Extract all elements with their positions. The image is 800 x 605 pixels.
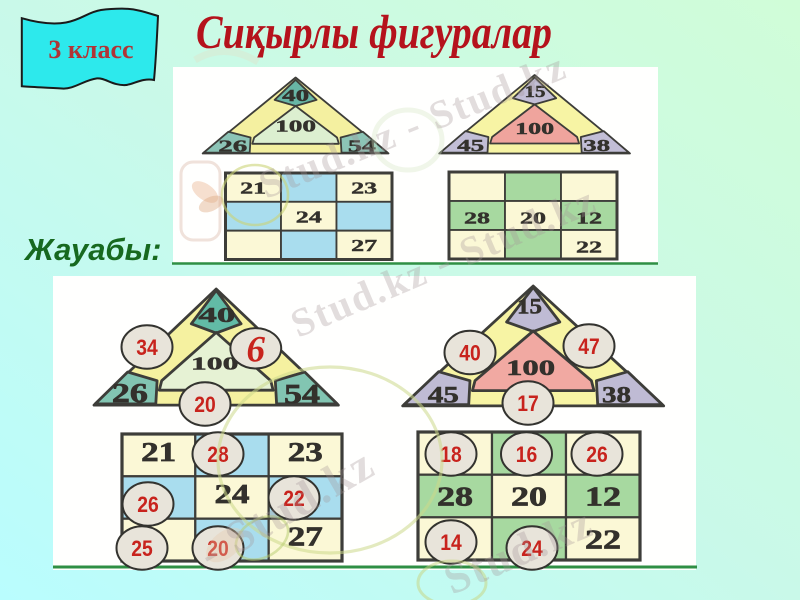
svg-text:40: 40 xyxy=(459,340,481,365)
svg-text:6: 6 xyxy=(247,330,266,371)
svg-text:Сиқырлы фигуралар: Сиқырлы фигуралар xyxy=(196,6,552,59)
svg-text:16: 16 xyxy=(516,442,538,467)
svg-text:38: 38 xyxy=(583,136,610,155)
svg-text:Жауабы:: Жауабы: xyxy=(23,232,161,267)
svg-text:40: 40 xyxy=(198,303,235,327)
svg-text:17: 17 xyxy=(517,391,539,416)
svg-text:15: 15 xyxy=(517,294,542,319)
svg-text:40: 40 xyxy=(282,86,309,105)
svg-text:34: 34 xyxy=(136,335,158,360)
svg-text:100: 100 xyxy=(275,117,316,136)
svg-text:24: 24 xyxy=(296,207,323,226)
svg-text:25: 25 xyxy=(131,536,153,561)
svg-text:54: 54 xyxy=(284,379,320,409)
svg-text:28: 28 xyxy=(437,482,473,512)
svg-text:23: 23 xyxy=(351,179,377,198)
svg-text:26: 26 xyxy=(137,492,159,517)
svg-text:38: 38 xyxy=(602,382,631,407)
svg-text:100: 100 xyxy=(191,354,239,374)
svg-text:100: 100 xyxy=(515,119,554,138)
svg-text:22: 22 xyxy=(576,238,602,257)
svg-text:45: 45 xyxy=(457,136,484,155)
svg-text:100: 100 xyxy=(506,355,555,380)
svg-text:27: 27 xyxy=(351,236,378,255)
svg-text:20: 20 xyxy=(194,392,216,417)
svg-text:26: 26 xyxy=(112,378,148,408)
svg-text:26: 26 xyxy=(586,442,608,467)
svg-text:20: 20 xyxy=(511,482,547,512)
svg-text:21: 21 xyxy=(141,437,176,467)
svg-text:12: 12 xyxy=(585,482,621,512)
svg-text:26: 26 xyxy=(218,137,247,156)
svg-text:45: 45 xyxy=(428,382,459,407)
svg-text:3 класс: 3 класс xyxy=(48,35,133,64)
svg-text:47: 47 xyxy=(578,334,600,359)
